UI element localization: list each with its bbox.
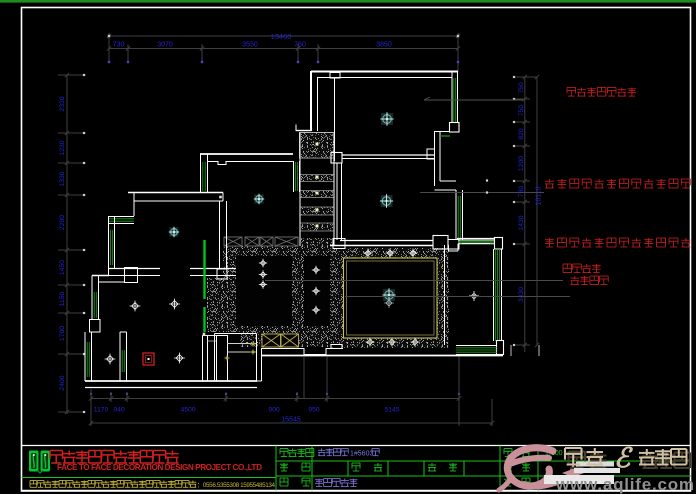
svg-text:3070: 3070 xyxy=(157,42,173,49)
svg-text:1230: 1230 xyxy=(59,140,66,155)
svg-text:730: 730 xyxy=(518,186,525,198)
svg-text:950: 950 xyxy=(308,407,320,414)
svg-text:730: 730 xyxy=(113,42,125,49)
svg-text:www.aqlife.com: www.aqlife.com xyxy=(555,475,694,494)
svg-text:1#5603: 1#5603 xyxy=(350,451,373,458)
svg-text:13460: 13460 xyxy=(271,32,292,41)
svg-text:760: 760 xyxy=(294,42,306,49)
svg-text:10110: 10110 xyxy=(536,186,543,205)
svg-text:750: 750 xyxy=(518,105,525,117)
svg-text:900: 900 xyxy=(268,407,280,414)
svg-text:3850: 3850 xyxy=(376,42,392,49)
svg-text:15545: 15545 xyxy=(281,417,301,424)
svg-text:820: 820 xyxy=(518,128,525,140)
svg-text:3430: 3430 xyxy=(518,287,525,302)
svg-text:：0556.5355308 15955485134: ：0556.5355308 15955485134 xyxy=(197,482,275,489)
svg-text:940: 940 xyxy=(113,407,125,414)
svg-text:4500: 4500 xyxy=(180,407,195,414)
svg-text:3550: 3550 xyxy=(242,42,258,49)
svg-text:1330: 1330 xyxy=(59,171,66,186)
svg-text:2400: 2400 xyxy=(59,375,66,390)
svg-text:5145: 5145 xyxy=(384,407,399,414)
svg-text:1450: 1450 xyxy=(59,260,66,275)
svg-text:FACE TO FACE DECORATION DESIGN: FACE TO FACE DECORATION DESIGN PROJECT C… xyxy=(57,463,262,472)
svg-text:1200: 1200 xyxy=(518,156,525,171)
svg-text:2280: 2280 xyxy=(59,215,66,230)
svg-text:1170: 1170 xyxy=(94,407,109,414)
svg-text:2330: 2330 xyxy=(59,96,66,111)
svg-text:1430: 1430 xyxy=(518,215,525,230)
svg-text:1700: 1700 xyxy=(59,326,66,341)
svg-text:1150: 1150 xyxy=(59,291,66,306)
svg-text:750: 750 xyxy=(518,82,525,94)
